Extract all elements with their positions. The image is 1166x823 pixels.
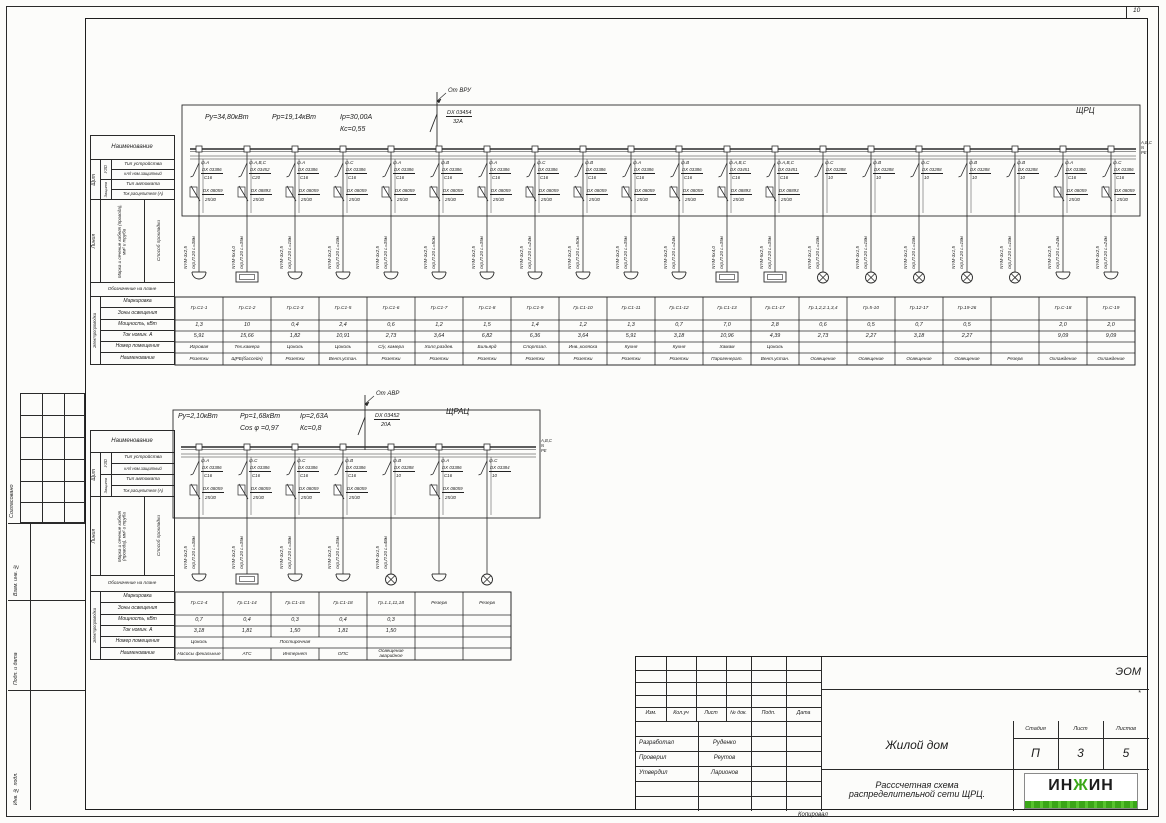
sheet-value: 3 [1058,738,1103,769]
sheets-value: 5 [1103,738,1149,769]
doc-code: ЭОМ [821,657,1141,689]
approval-grid-line [20,459,85,460]
col-doc: № док. [726,707,751,721]
side-divider [30,523,31,810]
logo-text: ИНЖИН [1025,777,1137,795]
title-block: Изм. Кол.уч Лист № док. Подп. Дата Разра… [635,656,1148,810]
company-logo: ИНЖИН [1024,773,1138,809]
zone-number: 10 [1133,7,1140,14]
project-name: Жилой дом [821,721,1013,769]
sheet-label: Лист [1058,721,1103,738]
side-divider [8,690,85,691]
sig-role-approved: Утвердил [639,770,668,777]
side-divider [8,600,85,601]
asterisk-mark: * [1138,690,1141,698]
logo-char: И [1089,777,1102,794]
sig-name-checked: Реутов [698,751,751,766]
col-izm: Изм. [636,707,666,721]
sig-role-checked: Проверил [639,755,666,762]
sig-name-developed: Руденко [698,736,751,751]
zone-divider [1126,6,1127,18]
copied-label: Копировал [798,812,828,819]
approval-grid [20,393,85,523]
approval-grid-line [20,481,85,482]
side-label-inv: Инв. № подл. [14,697,20,805]
col-podp: Подп. [751,707,786,721]
stage-label: Стадия [1013,721,1058,738]
sig-name-approved: Ларионов [698,766,751,781]
col-data: Дата [786,707,821,721]
approval-grid-line [20,415,85,416]
logo-char: Ж [1073,777,1088,794]
drawing-sheet: НаименованиеЩитУЗОЗащитаТип устройствакА… [0,0,1166,823]
logo-char: Н [1061,777,1074,794]
approval-grid-line [20,437,85,438]
approval-grid-line [64,393,65,523]
side-label-podp: Подп. и дата [14,607,20,685]
side-divider [8,523,85,524]
side-label-approved: Согласовано [9,398,15,518]
side-label-vzam: Взам. инв. № [14,530,20,596]
stage-value: П [1013,738,1058,769]
col-list: Лист [696,707,726,721]
logo-char: Н [1101,777,1114,794]
sig-role-developed: Разработал [639,740,674,747]
approval-grid-line [20,502,85,503]
logo-green-bar [1025,801,1137,808]
doc-title-line2: распределительной сети ЩРЦ. [849,790,985,799]
sheets-label: Листов [1103,721,1149,738]
doc-title: Расссчетная схема распределительной сети… [823,769,1011,811]
logo-char: И [1048,777,1061,794]
col-koluch: Кол.уч [666,707,696,721]
approval-grid-line [42,393,43,523]
